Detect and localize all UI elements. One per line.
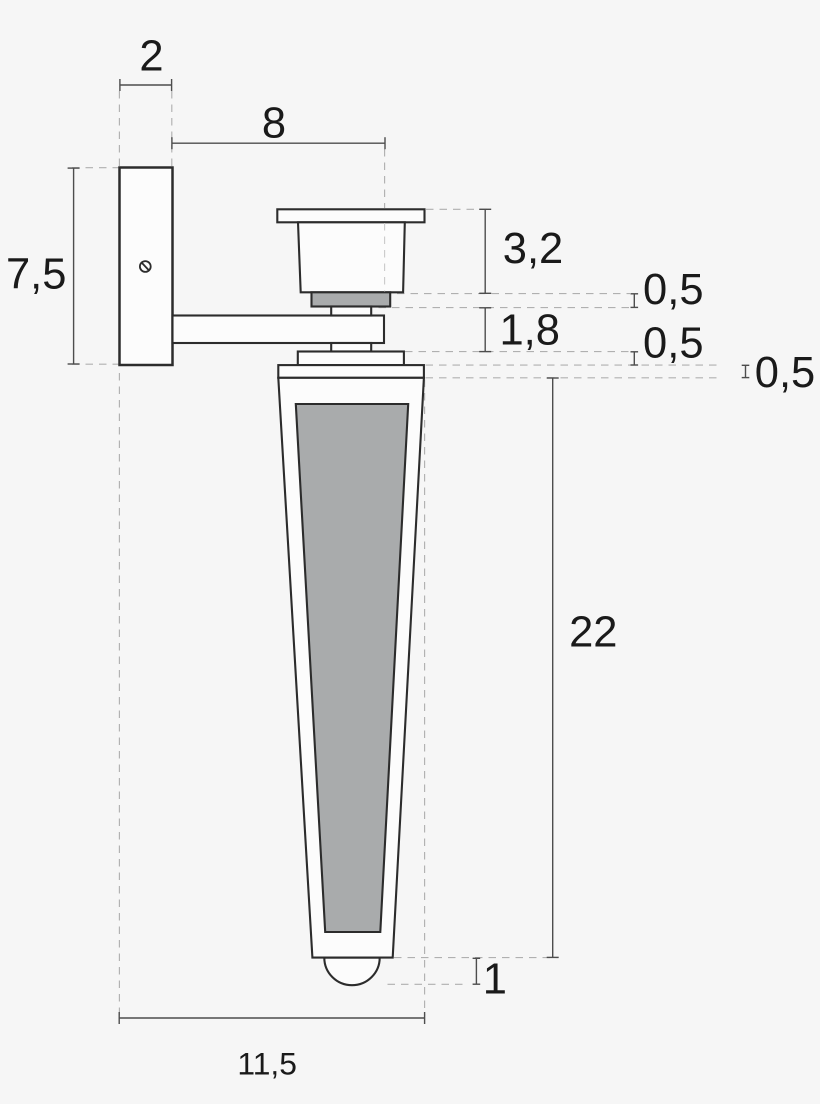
svg-text:8: 8 — [262, 100, 286, 148]
svg-text:3,2: 3,2 — [503, 225, 563, 273]
svg-text:7,5: 7,5 — [6, 251, 66, 299]
svg-text:0,5: 0,5 — [755, 349, 815, 397]
svg-text:1,8: 1,8 — [499, 307, 559, 355]
svg-text:2: 2 — [139, 33, 163, 81]
svg-text:22: 22 — [569, 609, 617, 657]
svg-text:11,5: 11,5 — [237, 1045, 297, 1081]
svg-text:0,5: 0,5 — [643, 320, 703, 368]
svg-text:0,5: 0,5 — [643, 266, 703, 314]
svg-text:1: 1 — [483, 956, 507, 1004]
